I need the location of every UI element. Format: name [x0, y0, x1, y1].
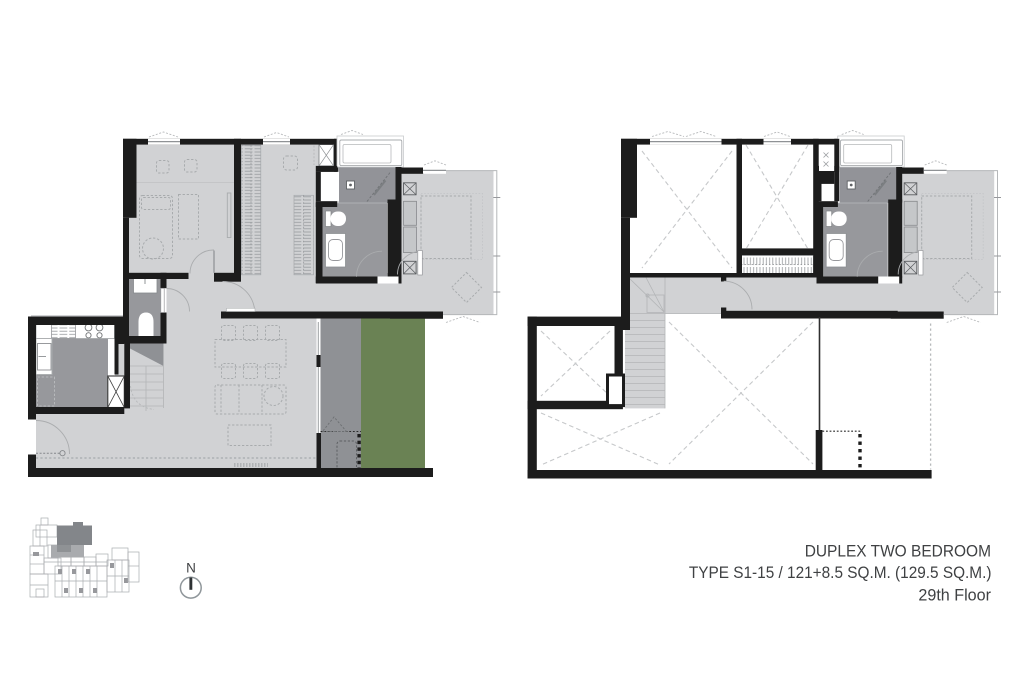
- svg-text:29th Floor: 29th Floor: [918, 586, 991, 604]
- svg-text:TYPE S1-15 / 121+8.5 SQ.M. (12: TYPE S1-15 / 121+8.5 SQ.M. (129.5 SQ.M.): [689, 564, 992, 582]
- svg-text:N: N: [186, 561, 196, 576]
- svg-text:DUPLEX TWO BEDROOM: DUPLEX TWO BEDROOM: [805, 542, 991, 560]
